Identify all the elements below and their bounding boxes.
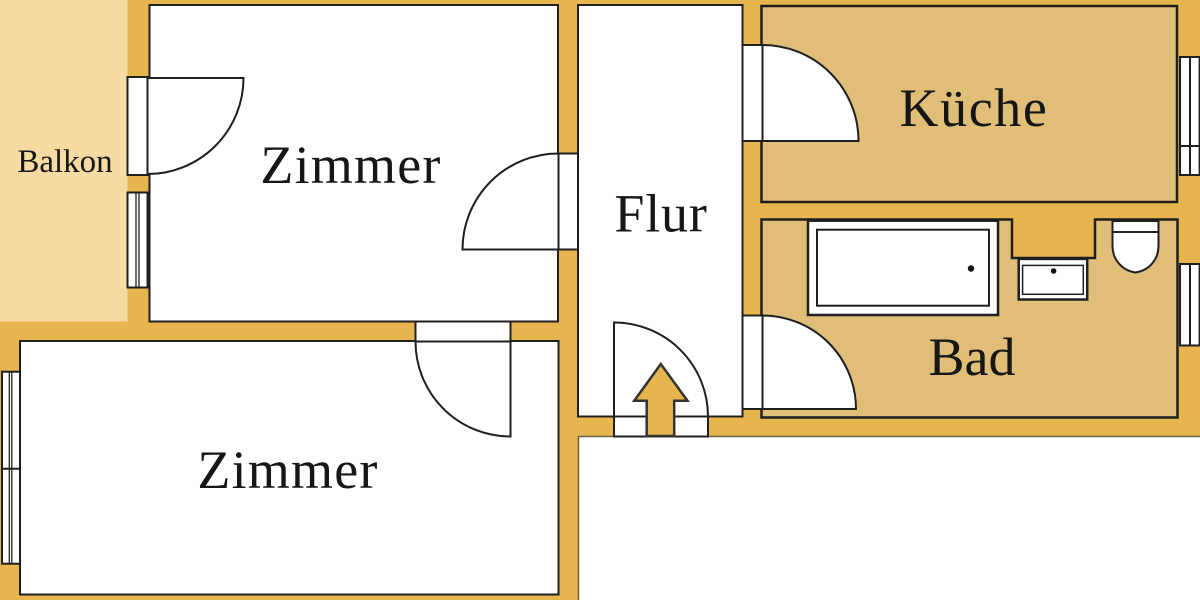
svg-text:Balkon: Balkon <box>17 144 112 180</box>
svg-text:Zimmer: Zimmer <box>197 440 378 500</box>
svg-text:Zimmer: Zimmer <box>260 135 441 195</box>
svg-text:Flur: Flur <box>614 184 707 244</box>
svg-text:Küche: Küche <box>900 78 1049 138</box>
svg-text:Bad: Bad <box>929 327 1016 387</box>
